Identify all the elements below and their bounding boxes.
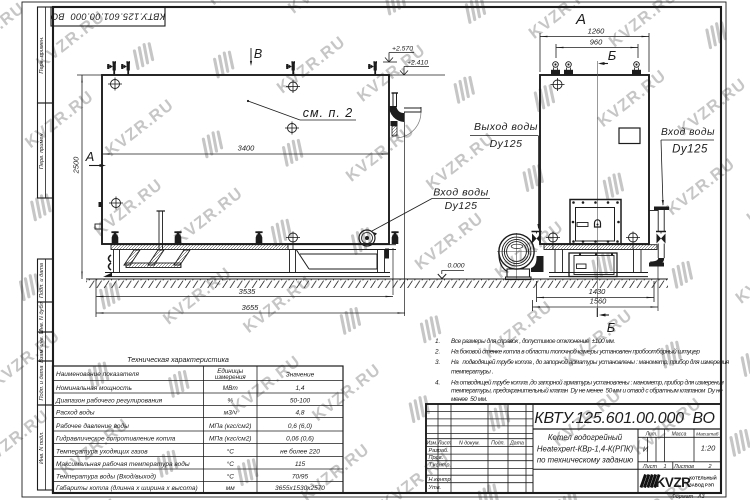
svg-text:КВТУ.125.601.00.000 ВО: КВТУ.125.601.00.000 ВО	[51, 12, 165, 22]
svg-text:Н.контр.: Н.контр.	[429, 477, 453, 483]
svg-text:Номинальная мощность: Номинальная мощность	[56, 385, 133, 392]
svg-text:Подп.: Подп.	[491, 441, 505, 447]
svg-text:Разраб.: Разраб.	[429, 448, 449, 454]
svg-text:70/95: 70/95	[292, 473, 309, 480]
svg-text:Наименование показателя: Наименование показателя	[56, 371, 139, 378]
svg-text:Все размеры для справок , допу: Все размеры для справок , допустимое отк…	[451, 337, 615, 345]
svg-text:KVZR.RU: KVZR.RU	[0, 327, 64, 392]
svg-text:Инв. N дубл.: Инв. N дубл.	[39, 301, 45, 333]
svg-text:°С: °С	[227, 447, 235, 455]
svg-text:4.: 4.	[435, 380, 440, 387]
svg-text:1430: 1430	[589, 287, 607, 296]
svg-text:960: 960	[590, 38, 603, 47]
svg-text:3535: 3535	[239, 287, 257, 296]
svg-text:В: В	[254, 47, 262, 61]
svg-text:KVZR.RU: KVZR.RU	[229, 352, 304, 417]
svg-text:Диапазон рабочего регулировани: Диапазон рабочего регулирования	[55, 396, 163, 404]
svg-text:Котел водогрейный: Котел водогрейный	[548, 433, 623, 442]
svg-text:Лист: Лист	[642, 464, 658, 470]
svg-text:0,06 (0,6): 0,06 (0,6)	[286, 435, 314, 442]
svg-text:0.000: 0.000	[447, 263, 464, 270]
svg-text:по техническому заданию: по техническому заданию	[537, 456, 633, 465]
svg-text:Взам. инв. N: Взам. инв. N	[39, 329, 45, 363]
svg-text:Дата: Дата	[509, 441, 524, 447]
svg-text:3.: 3.	[435, 359, 440, 366]
svg-text:KVZR.RU: KVZR.RU	[594, 66, 669, 131]
svg-text:Техническая характеристика: Техническая характеристика	[127, 355, 229, 364]
svg-text:KVZR.RU: KVZR.RU	[171, 184, 246, 249]
svg-text:+2.410: +2.410	[407, 60, 428, 67]
svg-text:см. п. 2: см. п. 2	[303, 106, 354, 120]
svg-text:Масса: Масса	[672, 431, 687, 437]
svg-text:Т.контр.: Т.контр.	[429, 463, 452, 469]
svg-text:м3/ч: м3/ч	[224, 409, 238, 416]
svg-text:КВТУ.125.601.00.000 ВО: КВТУ.125.601.00.000 ВО	[534, 410, 715, 427]
svg-text:4,8: 4,8	[295, 409, 304, 416]
svg-text:0,6 (6,0): 0,6 (6,0)	[288, 423, 312, 430]
svg-text:Выход воды: Выход воды	[474, 121, 538, 133]
svg-text:Инв. N подл.: Инв. N подл.	[39, 431, 45, 464]
svg-text:Подп. и дата: Подп. и дата	[39, 365, 45, 400]
svg-text:Dy125: Dy125	[490, 138, 523, 150]
svg-text:Dy125: Dy125	[672, 144, 708, 156]
svg-text:Утв.: Утв.	[428, 485, 442, 491]
svg-text:мм: мм	[226, 485, 235, 492]
svg-text:KVZR.RU: KVZR.RU	[285, 0, 360, 17]
svg-text:KVZR.RU: KVZR.RU	[423, 129, 498, 194]
svg-text:Формат А3: Формат А3	[671, 494, 705, 500]
svg-text:N докум.: N докум.	[459, 441, 480, 447]
svg-text:Heatexpert-КВр-1,4-К(РПК): Heatexpert-КВр-1,4-К(РПК)	[537, 445, 634, 454]
svg-text:Значение: Значение	[286, 372, 315, 379]
svg-text:3400: 3400	[238, 144, 256, 153]
svg-text:На боковой стенке котла в обла: На боковой стенке котла в области топочн…	[451, 348, 700, 356]
svg-text:Габариты котла (длинна х ширин: Габариты котла (длинна х ширина х высота…	[56, 484, 198, 492]
svg-text:%: %	[227, 397, 233, 404]
svg-text:Температура уходящих газов: Температура уходящих газов	[56, 447, 148, 455]
svg-text:Масштаб: Масштаб	[696, 431, 719, 437]
svg-text:°С: °С	[227, 460, 235, 468]
svg-text:KVZR.RU: KVZR.RU	[102, 96, 177, 161]
svg-text:3655х1530х2570: 3655х1530х2570	[275, 485, 325, 492]
svg-text:2.: 2.	[434, 349, 440, 356]
svg-text:115: 115	[295, 461, 306, 468]
svg-text:Температура воды (Вход/выход): Температура воды (Вход/выход)	[56, 472, 156, 480]
svg-text:Вход воды: Вход воды	[661, 127, 715, 138]
svg-text:Лист: Лист	[437, 441, 452, 447]
svg-text:не более 220: не более 220	[280, 447, 320, 455]
svg-text:МПа (кгс/см2): МПа (кгс/см2)	[209, 435, 251, 442]
svg-text:Перв. примен.: Перв. примен.	[39, 36, 45, 73]
svg-text:+2.570: +2.570	[392, 46, 413, 53]
svg-text:Рабочее давление воды: Рабочее давление воды	[56, 422, 129, 430]
svg-text:Подп. и дата: Подп. и дата	[39, 263, 45, 298]
svg-text:На отводящей трубе котла ,до з: На отводящей трубе котла ,до запорной ар…	[451, 379, 724, 387]
svg-text:1260: 1260	[588, 27, 606, 36]
svg-text:KVZR.RU: KVZR.RU	[22, 87, 97, 152]
svg-text:2500: 2500	[72, 156, 81, 175]
svg-text:менее 50 мм.: менее 50 мм.	[451, 396, 487, 403]
svg-text:KVZR.RU: KVZR.RU	[160, 264, 235, 329]
svg-text:KVZR.RU: KVZR.RU	[274, 33, 349, 98]
svg-text:КОТЕЛЬНЫЙ: КОТЕЛЬНЫЙ	[689, 476, 716, 481]
svg-text:Изм.: Изм.	[426, 441, 437, 447]
svg-text:Листов: Листов	[673, 464, 694, 470]
svg-text:Максимальная рабочая температу: Максимальная рабочая температура воды	[56, 460, 190, 468]
svg-text:1.: 1.	[435, 338, 440, 345]
svg-text:1: 1	[663, 464, 666, 470]
svg-text:KVZR: KVZR	[656, 475, 692, 490]
svg-text:2: 2	[707, 464, 711, 470]
svg-text:KVZR.RU: KVZR.RU	[744, 163, 750, 228]
svg-text:Пров.: Пров.	[429, 455, 444, 461]
svg-text:Dy125: Dy125	[445, 200, 478, 212]
svg-text:1,4: 1,4	[295, 385, 304, 392]
svg-text:Расход воды: Расход воды	[56, 408, 95, 416]
svg-text:Гидравлическое сопротивление к: Гидравлическое сопротивление котла	[56, 434, 176, 442]
svg-text:А: А	[575, 11, 586, 28]
svg-text:МВт: МВт	[223, 385, 239, 392]
svg-text:Перв. примен.: Перв. примен.	[39, 132, 45, 169]
svg-text:температуры .: температуры .	[451, 369, 493, 376]
svg-text:°С: °С	[227, 472, 235, 480]
svg-text:50-100: 50-100	[290, 397, 311, 404]
svg-text:И: И	[643, 445, 649, 454]
svg-text:3655: 3655	[242, 303, 260, 312]
svg-text:Вход воды: Вход воды	[433, 187, 488, 199]
svg-text:KVZR.RU: KVZR.RU	[0, 0, 28, 63]
svg-text:На подводящей трубе котла ,: На подводящей трубе котла , до запорной …	[451, 358, 730, 366]
svg-text:ЗАВОД РЭП: ЗАВОД РЭП	[689, 483, 714, 488]
svg-text:Лит.: Лит.	[645, 431, 658, 437]
svg-text:KVZR.RU: KVZR.RU	[663, 155, 738, 220]
svg-text:KVZR.RU: KVZR.RU	[343, 121, 418, 186]
svg-text:Б: Б	[608, 48, 617, 63]
svg-text:измерения: измерения	[215, 374, 247, 381]
svg-text:МПа (кгс/см2): МПа (кгс/см2)	[209, 423, 251, 430]
svg-text:1560: 1560	[590, 297, 608, 306]
svg-text:Б: Б	[607, 320, 616, 335]
svg-text:температуры, предохранительный: температуры, предохранительный клапан Dy…	[451, 387, 723, 395]
svg-text:А: А	[85, 149, 95, 164]
svg-text:KVZR.RU: KVZR.RU	[732, 243, 750, 308]
svg-text:1:20: 1:20	[701, 444, 716, 453]
